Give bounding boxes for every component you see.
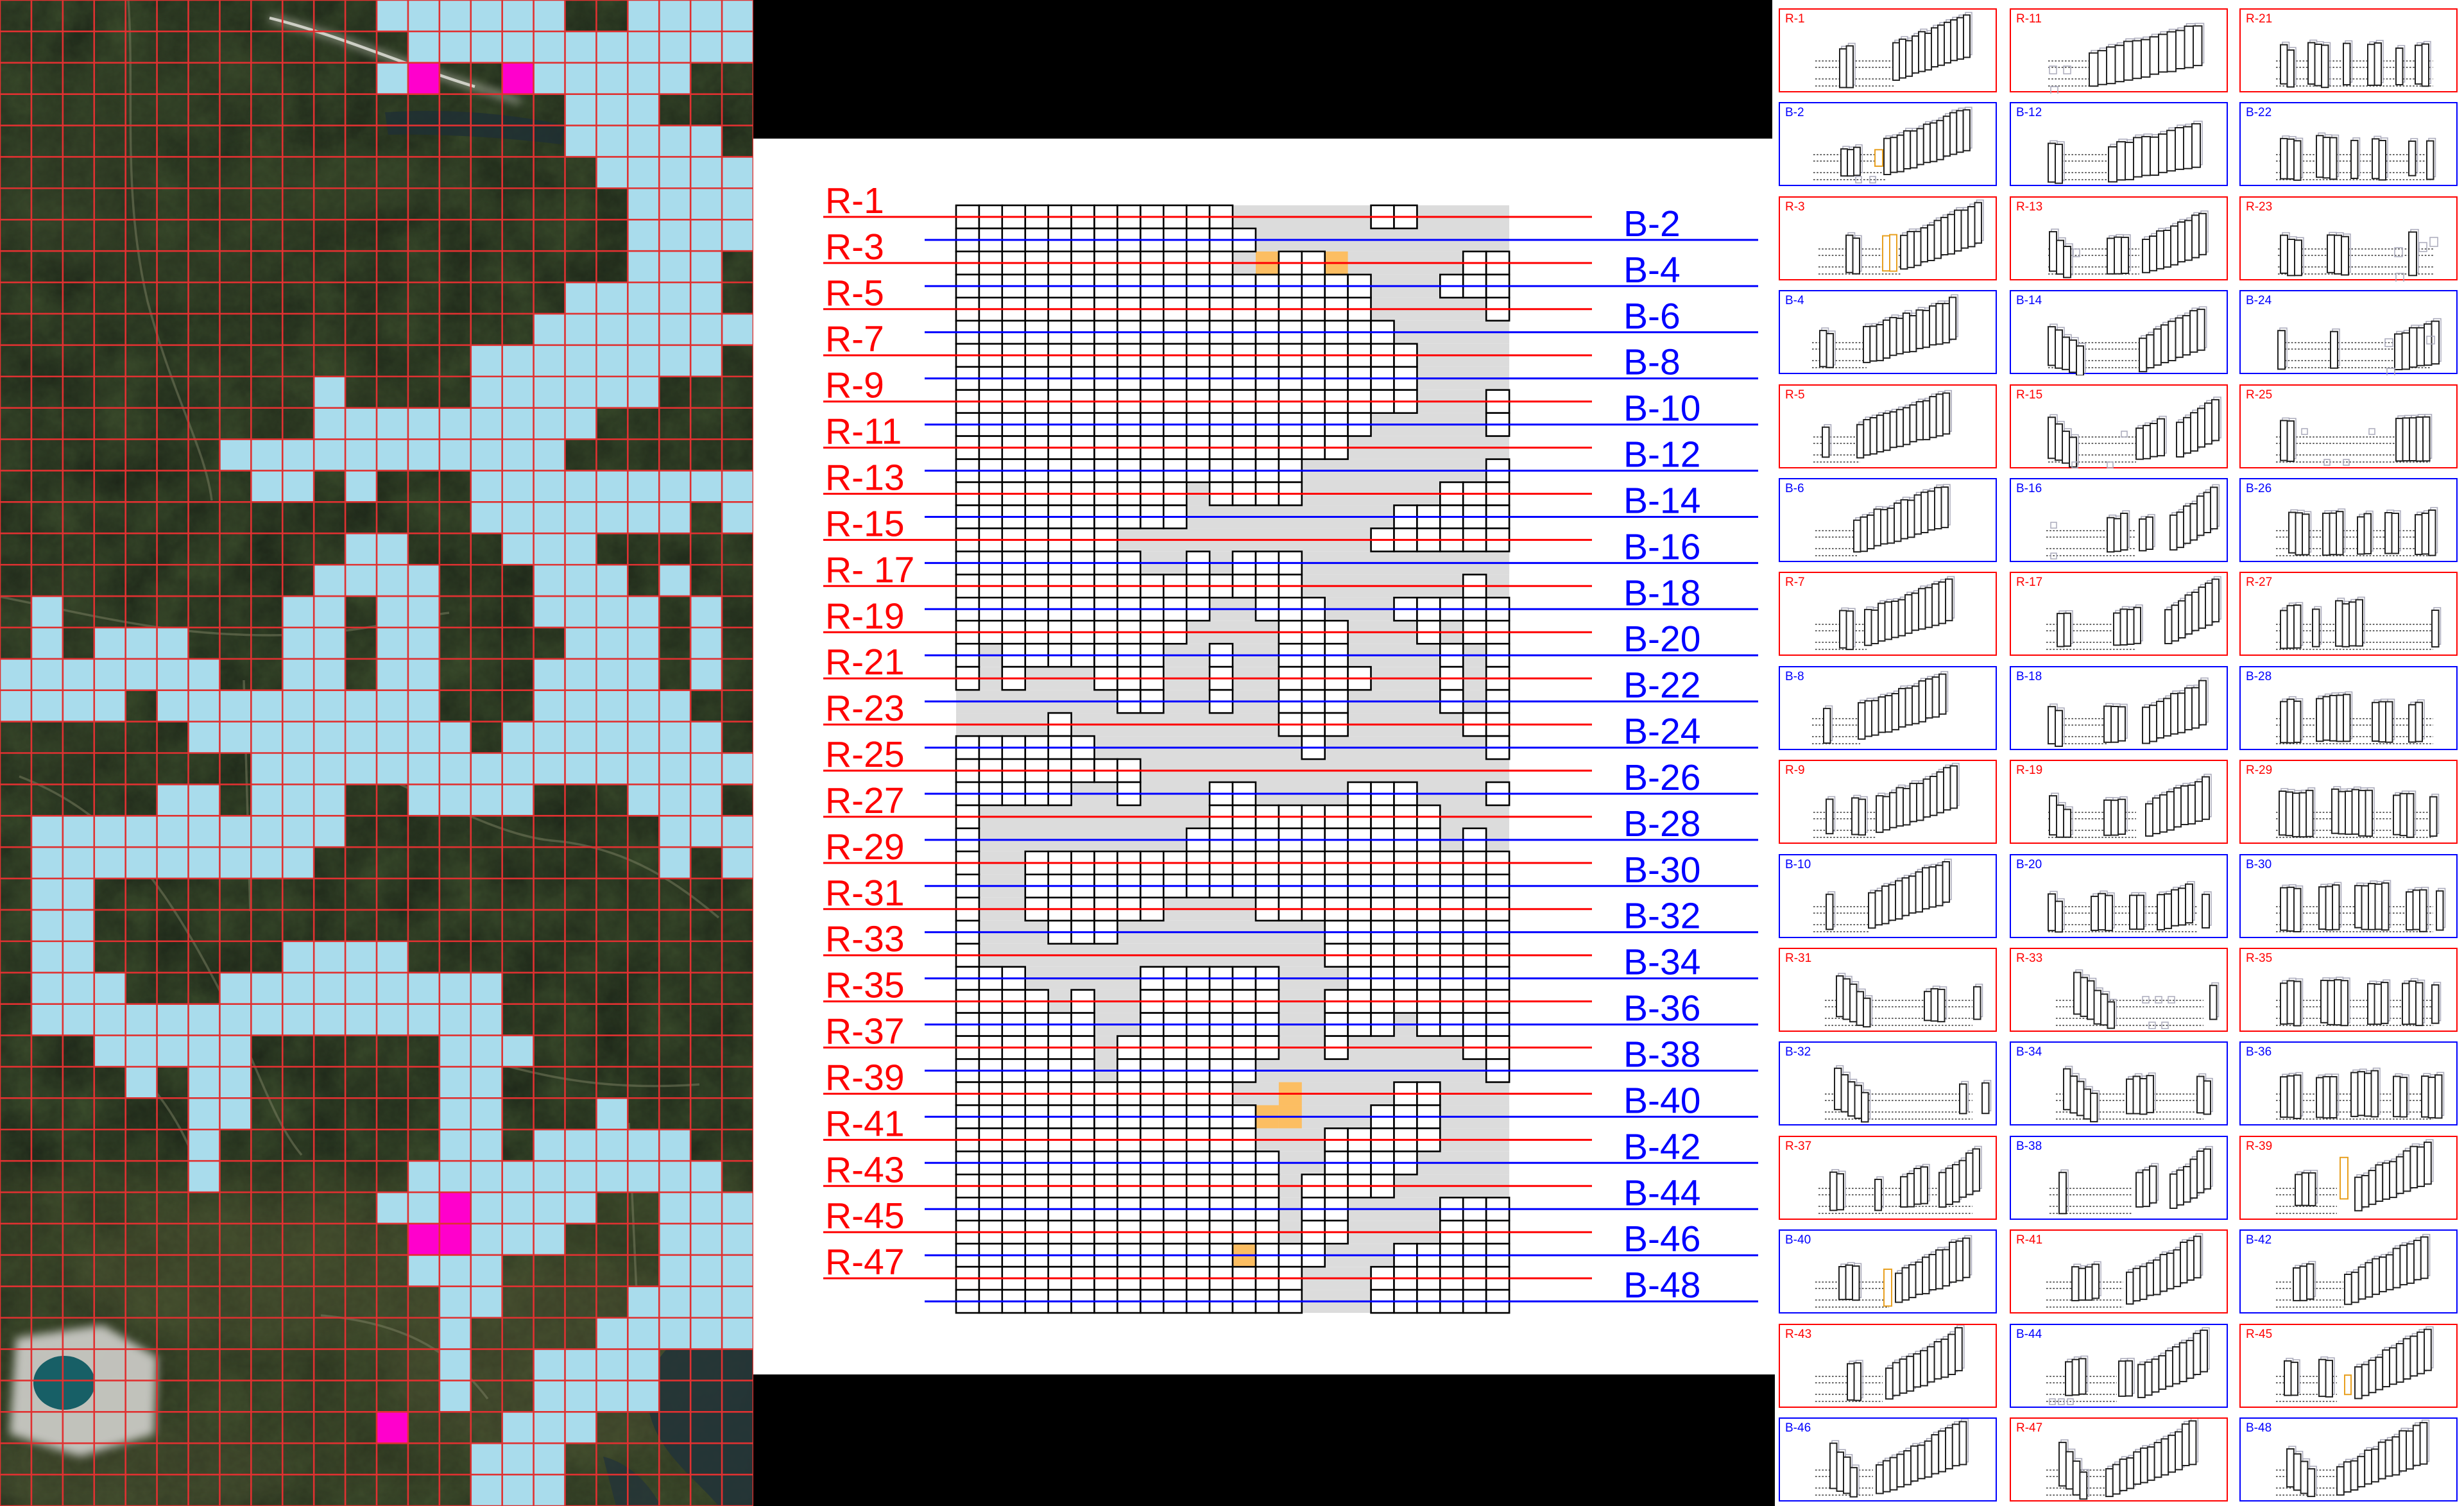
svg-text:B-40: B-40 <box>1623 1080 1700 1121</box>
svg-text:R-15: R-15 <box>825 503 905 544</box>
svg-text:B-38: B-38 <box>1623 1034 1700 1075</box>
svg-text:B-8: B-8 <box>1623 342 1681 383</box>
svg-text:R-37: R-37 <box>825 1011 905 1052</box>
svg-text:B-24: B-24 <box>1623 711 1700 752</box>
svg-text:R-1: R-1 <box>825 180 884 221</box>
svg-text:B-42: B-42 <box>1623 1126 1700 1167</box>
svg-text:B-26: B-26 <box>1623 757 1700 798</box>
svg-text:R-9: R-9 <box>825 365 884 406</box>
svg-text:R-19: R-19 <box>825 595 905 637</box>
svg-text:R-11: R-11 <box>825 411 902 452</box>
svg-text:R-43: R-43 <box>825 1149 905 1190</box>
svg-text:R-5: R-5 <box>825 273 884 314</box>
svg-text:B-4: B-4 <box>1623 250 1681 291</box>
svg-text:R-23: R-23 <box>825 688 905 729</box>
svg-text:B-14: B-14 <box>1623 481 1700 522</box>
svg-text:B-2: B-2 <box>1623 203 1681 244</box>
svg-text:B-48: B-48 <box>1623 1265 1700 1306</box>
svg-text:B-32: B-32 <box>1623 896 1700 937</box>
svg-text:B-34: B-34 <box>1623 942 1700 983</box>
svg-text:B-44: B-44 <box>1623 1172 1700 1213</box>
svg-text:R-21: R-21 <box>825 642 905 683</box>
svg-text:B-30: B-30 <box>1623 850 1700 891</box>
svg-text:R-41: R-41 <box>825 1103 905 1144</box>
svg-text:B-20: B-20 <box>1623 619 1700 660</box>
svg-text:R-13: R-13 <box>825 458 905 499</box>
svg-text:R-45: R-45 <box>825 1195 905 1236</box>
svg-text:B-36: B-36 <box>1623 988 1700 1029</box>
svg-text:R-39: R-39 <box>825 1057 905 1099</box>
svg-text:B-6: B-6 <box>1623 296 1681 337</box>
svg-text:B-16: B-16 <box>1623 526 1700 567</box>
svg-text:R-27: R-27 <box>825 780 905 821</box>
svg-text:R-47: R-47 <box>825 1242 905 1283</box>
svg-text:B-46: B-46 <box>1623 1219 1700 1260</box>
svg-text:R-29: R-29 <box>825 826 905 868</box>
svg-text:R-35: R-35 <box>825 965 905 1006</box>
svg-text:B-12: B-12 <box>1623 434 1700 475</box>
svg-text:B-10: B-10 <box>1623 388 1700 429</box>
svg-text:B-22: B-22 <box>1623 665 1700 706</box>
svg-text:B-28: B-28 <box>1623 803 1700 844</box>
svg-text:R-33: R-33 <box>825 919 905 960</box>
svg-text:R- 17: R- 17 <box>825 549 914 590</box>
svg-text:R-31: R-31 <box>825 873 905 914</box>
svg-text:R-25: R-25 <box>825 734 905 775</box>
svg-text:R-7: R-7 <box>825 319 884 360</box>
svg-text:R-3: R-3 <box>825 227 884 268</box>
svg-text:B-18: B-18 <box>1623 572 1700 613</box>
